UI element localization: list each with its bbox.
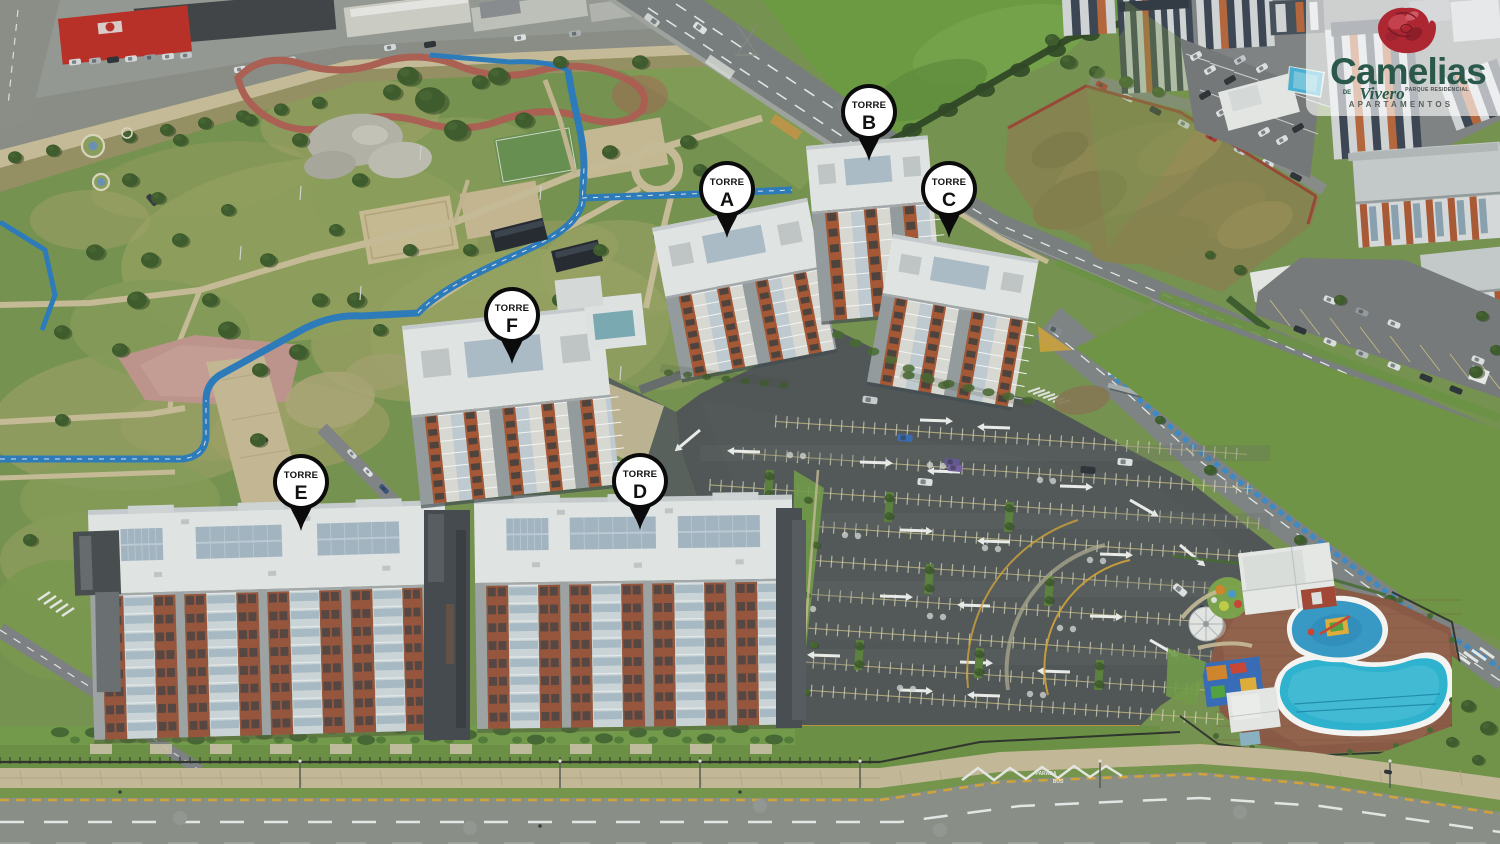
- svg-text:D: D: [633, 481, 647, 503]
- svg-text:TORRE: TORRE: [710, 177, 745, 188]
- svg-text:B: B: [862, 112, 876, 134]
- svg-text:E: E: [294, 482, 307, 504]
- svg-text:TORRE: TORRE: [284, 470, 319, 481]
- svg-text:APARTAMENTOS: APARTAMENTOS: [1349, 100, 1454, 109]
- svg-text:Camelias: Camelias: [1330, 51, 1486, 92]
- svg-text:TORRE: TORRE: [495, 303, 530, 314]
- svg-text:PARQUE RESIDENCIAL: PARQUE RESIDENCIAL: [1405, 87, 1469, 93]
- svg-text:TORRE: TORRE: [932, 177, 967, 188]
- svg-text:DE: DE: [1343, 90, 1351, 96]
- svg-text:F: F: [506, 315, 518, 337]
- svg-text:TORRE: TORRE: [623, 469, 658, 480]
- svg-text:C: C: [942, 189, 956, 211]
- svg-text:TORRE: TORRE: [852, 100, 887, 111]
- svg-text:A: A: [720, 189, 734, 211]
